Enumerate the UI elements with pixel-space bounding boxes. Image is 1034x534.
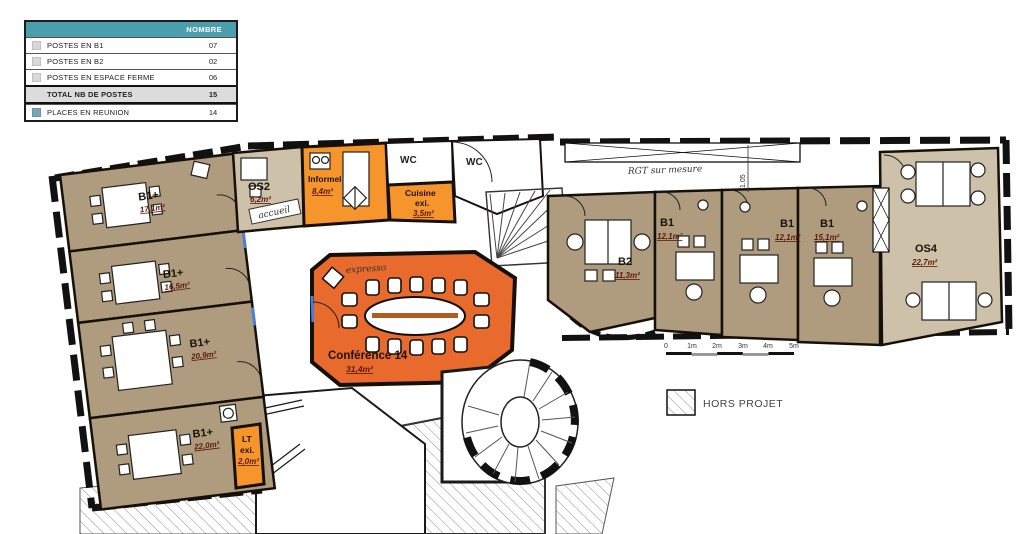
room-area-lt: 2,0m² — [237, 457, 259, 466]
legend-row-places-reunion: PLACES EN REUNION 14 — [26, 104, 236, 120]
room-area-b1-c: 15,1m² — [814, 233, 840, 242]
scale-tick-3: 3m — [738, 343, 748, 350]
room-area-conference: 31,4m² — [346, 364, 374, 374]
hors-projet-key: HORS PROJET — [667, 390, 783, 415]
annex-walls — [256, 388, 425, 534]
room-label-b1plus-3: B1+ — [189, 336, 211, 350]
legend-row-value: 02 — [196, 57, 230, 66]
room-label-os4: OS4 — [915, 243, 938, 255]
legend-square-b1 — [32, 41, 41, 50]
room-label-cuisine-suffix: exi. — [415, 198, 429, 208]
legend-row-label: POSTES EN B2 — [47, 57, 196, 66]
room-label-b1plus-4: B1+ — [192, 426, 214, 440]
room-label-b1-c: B1 — [820, 218, 834, 230]
room-area-os4: 22,7m² — [911, 258, 938, 267]
room-label-lt: LT — [242, 434, 253, 444]
legend-square-b2 — [32, 57, 41, 66]
scale-tick-2: 2m — [712, 343, 722, 350]
lt-closet: LT exi. 2,0m² — [232, 424, 264, 488]
legend-row-postes-b1: POSTES EN B1 07 — [26, 37, 236, 53]
scale-tick-1: 1m — [687, 343, 697, 350]
room-area-b1-a: 12,1m² — [657, 232, 683, 241]
legend-row-label: POSTES EN ESPACE FERME — [47, 73, 196, 82]
room-wc-left — [386, 141, 453, 185]
hors-projet-label: HORS PROJET — [703, 398, 783, 410]
legend-row-label: PLACES EN REUNION — [47, 108, 196, 117]
legend-row-postes-b2: POSTES EN B2 02 — [26, 53, 236, 69]
legend-row-value: 07 — [196, 41, 230, 50]
legend-row-total: TOTAL NB DE POSTES 15 — [26, 85, 236, 104]
room-area-cuisine: 3,5m² — [413, 209, 434, 218]
scale-bar: 0 1m 2m 3m 4m 5m — [664, 343, 799, 356]
dim-105: 1.05 — [740, 174, 747, 188]
room-label-cuisine: Cuisine — [405, 188, 436, 198]
room-label-b1-b: B1 — [780, 218, 794, 230]
room-area-b1-b: 12,1m² — [775, 233, 801, 242]
right-wing: RGT sur mesure 1.05 — [548, 143, 1002, 345]
conference-room: expresso Conférence 14 31,4m² — [312, 252, 515, 385]
scale-tick-0: 0 — [664, 343, 668, 350]
room-label-informel: Informel — [308, 174, 342, 184]
room-label-wc-left: WC — [400, 155, 417, 166]
legend-square-reunion — [32, 108, 41, 117]
room-label-b2: B2 — [618, 256, 632, 268]
legend-square-none — [32, 90, 41, 99]
room-label-b1plus-2: B1+ — [162, 267, 184, 281]
top-band-rooms: OS2 6,2m² Informel 8,4m² WC WC Cuisine e… — [233, 139, 543, 232]
legend-row-label: POSTES EN B1 — [47, 41, 196, 50]
room-label-b1-a: B1 — [660, 217, 674, 229]
legend-table: NOMBRE POSTES EN B1 07 POSTES EN B2 02 P… — [24, 20, 238, 122]
room-area-b2: 11,3m² — [615, 271, 640, 280]
legend-header-label: NOMBRE — [186, 25, 222, 34]
legend-row-label: TOTAL NB DE POSTES — [47, 90, 196, 99]
room-wc-right — [452, 139, 543, 214]
legend-square-espace-ferme — [32, 73, 41, 82]
scale-tick-4: 4m — [763, 343, 773, 350]
legend-row-espace-ferme: POSTES EN ESPACE FERME 06 — [26, 69, 236, 85]
room-label-lt-suffix: exi. — [240, 445, 254, 455]
room-area-informel: 8,4m² — [312, 187, 333, 196]
legend-header: NOMBRE — [26, 22, 236, 37]
room-area-os2: 6,2m² — [250, 195, 271, 204]
legend-row-value: 14 — [196, 108, 230, 117]
floor-plan-page: B1+ 17,1m² B1+ 16,5m² B1+ 20,9m² B1+ 22,… — [0, 0, 1034, 534]
scale-tick-5: 5m — [789, 343, 799, 350]
room-label-wc-right: WC — [466, 157, 483, 168]
rgt-annotation: RGT sur mesure — [627, 164, 703, 177]
spiral-stair — [442, 360, 578, 484]
room-label-conference: Conférence 14 — [328, 350, 408, 362]
legend-row-value: 15 — [196, 90, 230, 99]
room-label-b1plus-1: B1+ — [138, 189, 160, 203]
room-label-os2: OS2 — [248, 181, 270, 193]
legend-row-value: 06 — [196, 73, 230, 82]
